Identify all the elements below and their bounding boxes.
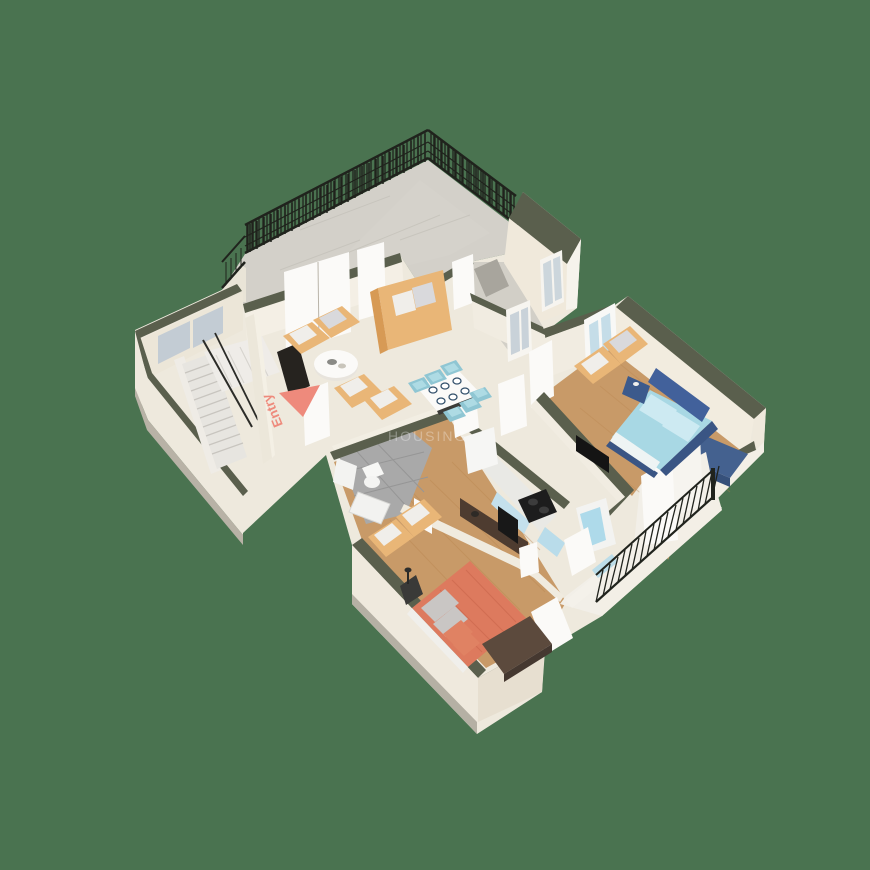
svg-text:HOUSING: HOUSING: [388, 428, 467, 444]
